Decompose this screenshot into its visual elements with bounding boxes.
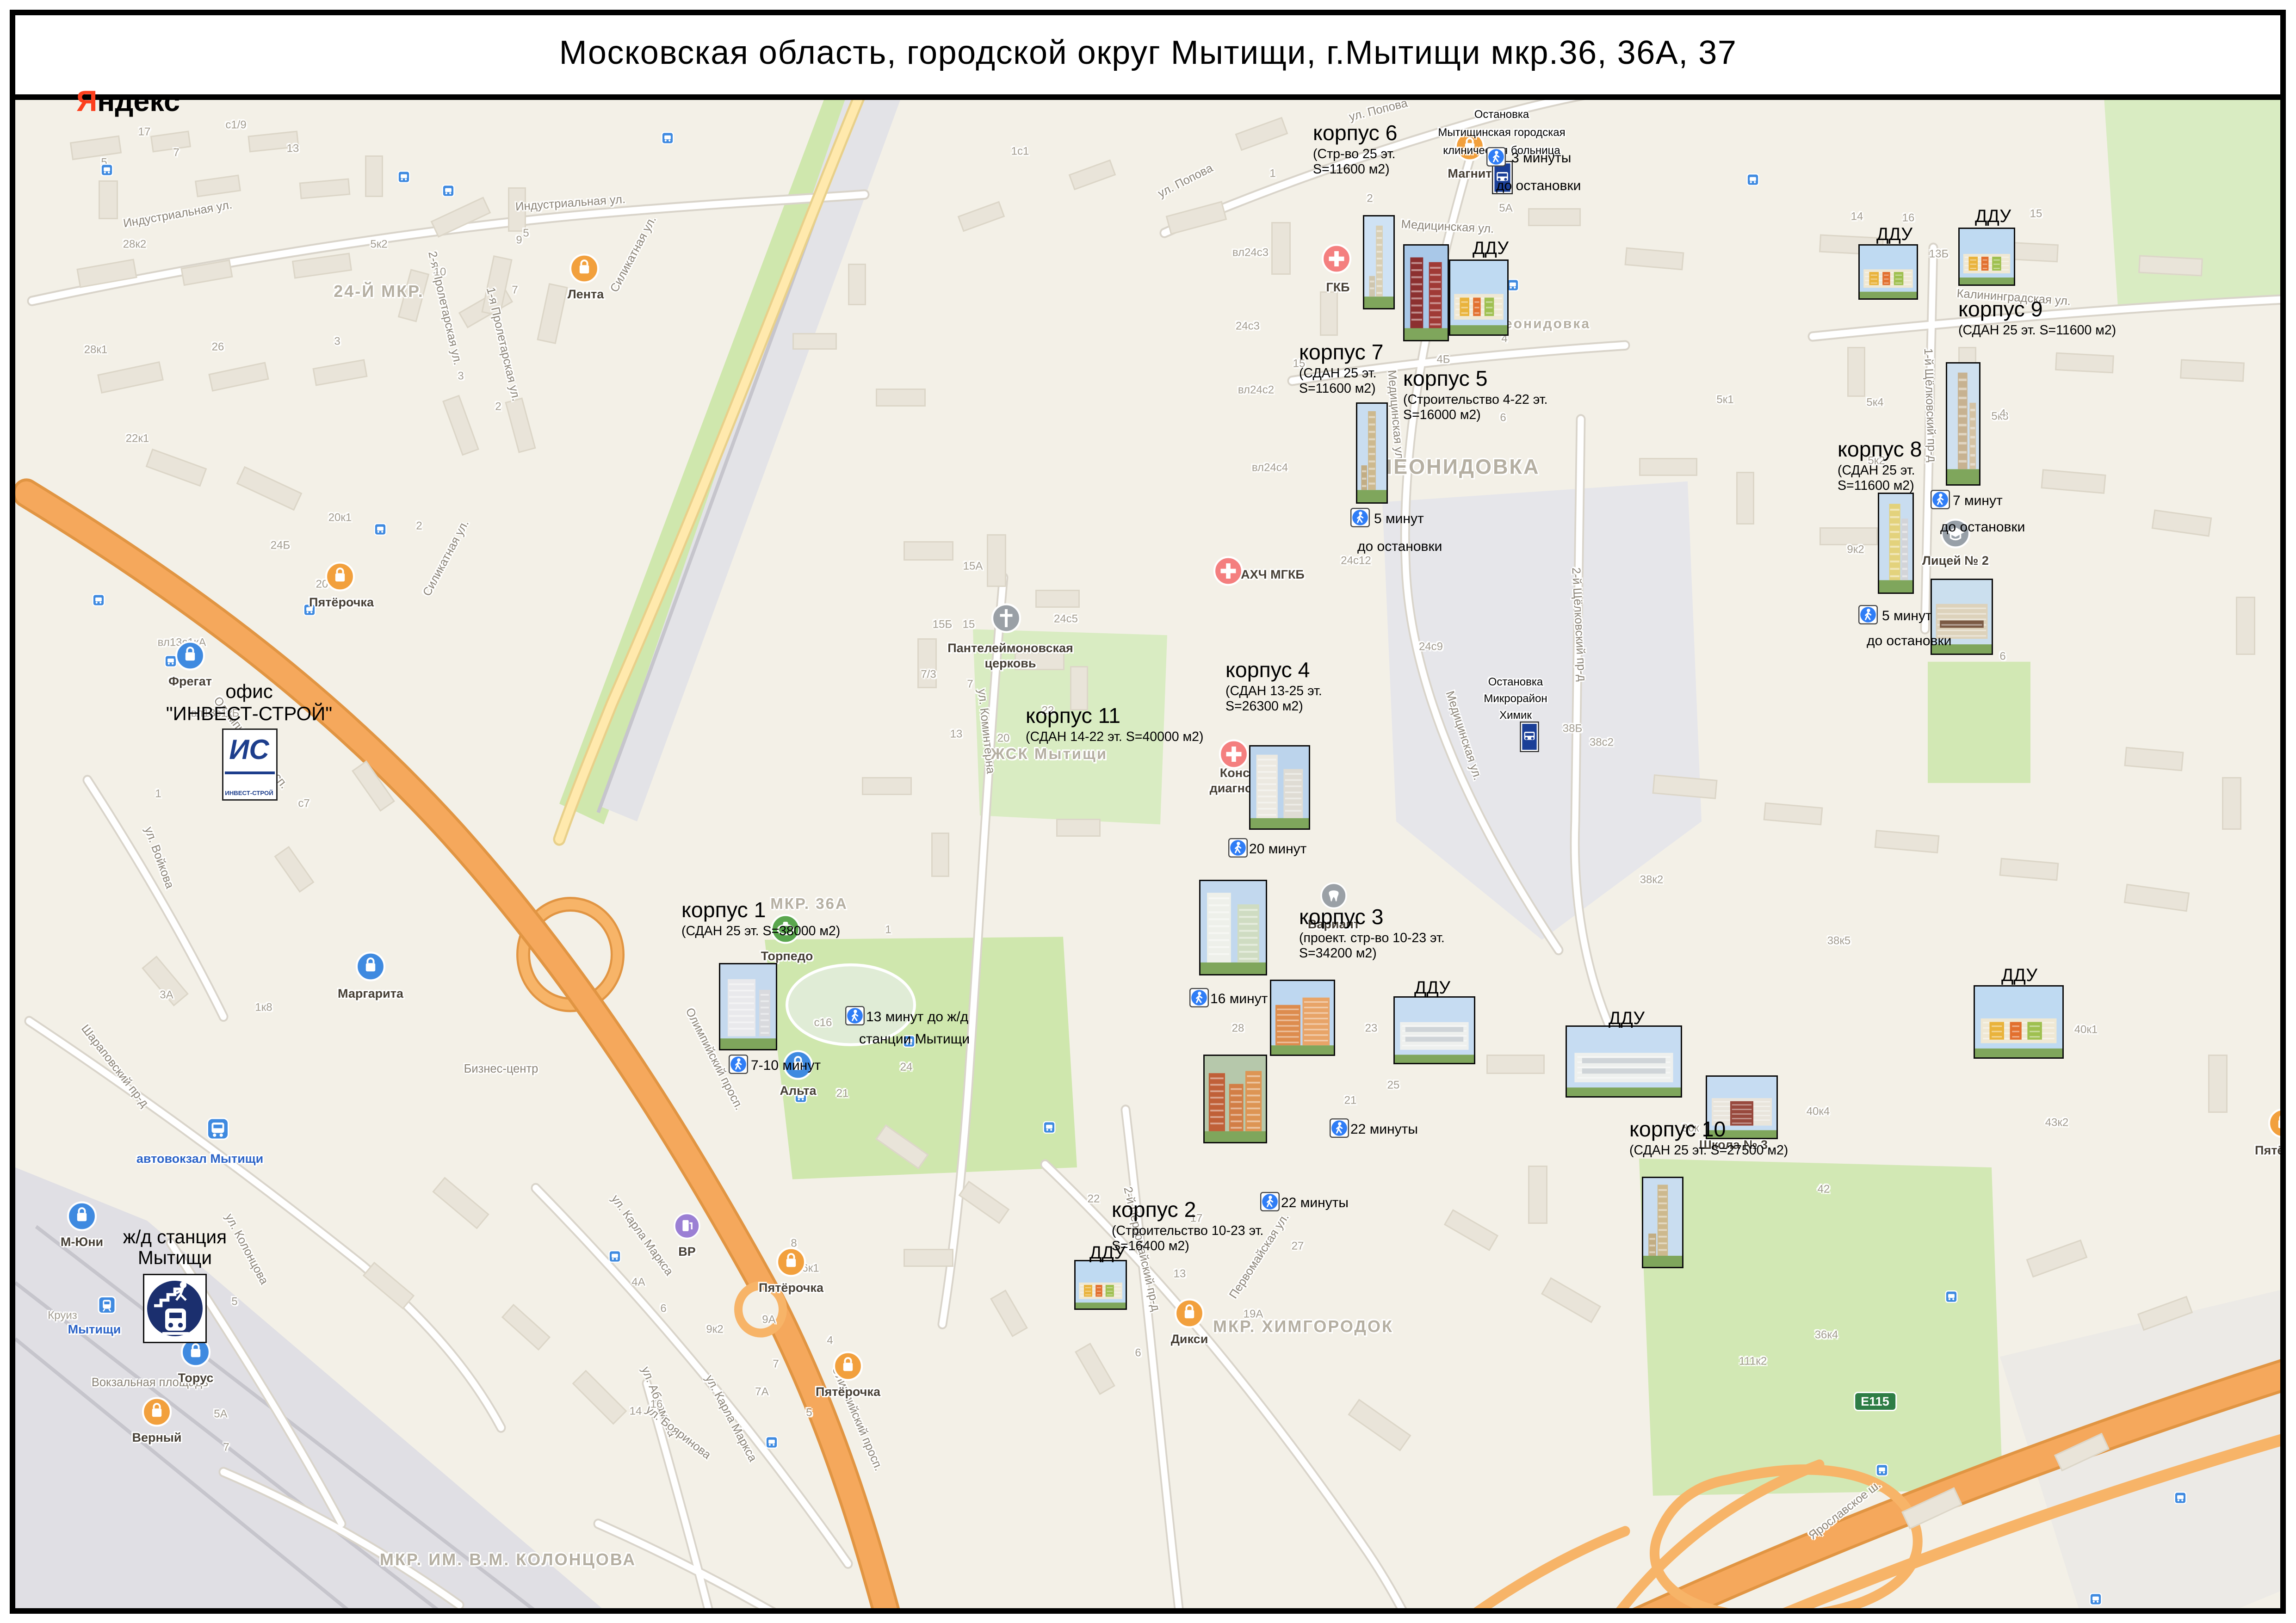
korpus-details: (Строительство 10-23 эт. — [1112, 1224, 1263, 1239]
building-number: 2 — [1367, 192, 1373, 205]
building-number: 43к2 — [2045, 1117, 2069, 1129]
building-number: 24с5 — [1054, 613, 1078, 625]
ddu-photo — [1393, 996, 1475, 1064]
ddu-photo — [1566, 1025, 1682, 1098]
building-number: вл24с4 — [1252, 462, 1288, 474]
building-number: 9к2 — [1847, 543, 1864, 556]
building-footprint — [2222, 777, 2241, 830]
korpus-details: (проект. стр-во 10-23 эт. — [1299, 931, 1445, 946]
walk-time-label: 16 минут — [1210, 992, 1268, 1007]
building-footprint — [1486, 1055, 1545, 1074]
building-number: 15 — [963, 618, 975, 631]
building-footprint — [1736, 472, 1754, 525]
shopping-bag-blue-icon[interactable] — [355, 951, 386, 989]
building-number: 38к2 — [1640, 874, 1664, 886]
invest-stroy-logo: ИС ИНВЕСТ-СТРОЙ — [222, 728, 277, 801]
bus-stop-mini-icon[interactable] — [662, 126, 674, 151]
building-number: 1с1 — [1011, 145, 1029, 158]
shopping-bag-orange-icon[interactable] — [569, 253, 600, 291]
korpus-details: (СДАН 14-22 эт. S=40000 м2) — [1026, 730, 1204, 745]
yandex-logo[interactable]: Яндекс — [76, 86, 180, 119]
shopping-bag-blue-icon[interactable] — [67, 1201, 97, 1239]
building-footprint — [2236, 597, 2255, 655]
building-number: 2 — [495, 401, 501, 413]
korpus-annotation: корпус 2(Строительство 10-23 эт.S=16400 … — [1112, 1199, 1263, 1254]
poi-label: Пятёрочка — [2255, 1143, 2281, 1157]
korpus-annotation: корпус 8(СДАН 25 эт.S=11600 м2) — [1838, 438, 1922, 494]
building-number: 38к5 — [1827, 935, 1851, 947]
bus-stop-mini-icon[interactable] — [398, 165, 410, 190]
ddu-label: ДДУ — [1473, 237, 1509, 258]
walk-time-label: 3 минуты — [1511, 151, 1571, 167]
medical-cross-icon[interactable] — [1213, 556, 1244, 593]
korpus-name: корпус 3 — [1299, 906, 1445, 931]
poi-label: Торус — [178, 1371, 214, 1385]
invest-stroy-caption: ИНВЕСТ-СТРОЙ — [223, 790, 276, 796]
building-number: 6 — [660, 1302, 666, 1315]
building-footprint — [1528, 1166, 1547, 1224]
shopping-bag-orange-icon[interactable] — [833, 1351, 863, 1388]
building-number: 4 — [1999, 407, 2005, 420]
building-number: 4А — [631, 1276, 645, 1289]
pedestrian-sign-icon — [1330, 1118, 1349, 1145]
building-number: 40к4 — [1807, 1105, 1830, 1118]
bus-stop-sign-icon[interactable] — [1520, 722, 1539, 759]
ddu-label: ДДУ — [2001, 964, 2037, 985]
building-number: 13 — [950, 728, 963, 741]
ddu-photo — [1858, 244, 1918, 300]
route-shield-e115: E115 — [1854, 1392, 1896, 1411]
bus-stop-mini-icon[interactable] — [2090, 1587, 2102, 1608]
building-number: 5 — [523, 227, 529, 240]
building-number: 9к2 — [706, 1323, 723, 1336]
korpus-name: корпус 11 — [1026, 705, 1204, 730]
bus-stop-mini-icon[interactable] — [766, 1431, 778, 1456]
district-label: ЛЕОНИДОВКА — [1378, 456, 1540, 480]
building-footprint — [1639, 458, 1697, 476]
poi-label: ВР — [678, 1245, 696, 1259]
building-footprint — [862, 777, 912, 795]
poi-label: Маргарита — [338, 987, 403, 1000]
building-footprint — [987, 534, 1006, 587]
poi-label: Альта — [780, 1084, 816, 1098]
poi-label: автовокзал Мытищи — [136, 1152, 263, 1166]
korpus-annotation: корпус 1(СДАН 25 эт. S=38000 м2) — [681, 899, 840, 939]
building-number: с1/9 — [225, 119, 246, 131]
korpus-photo — [1403, 244, 1449, 341]
korpus-details: S=16400 м2) — [1112, 1239, 1263, 1254]
bus-stop-name: Остановка — [1488, 676, 1543, 688]
korpus-details: (СДАН 13-25 эт. — [1225, 684, 1322, 699]
building-footprint — [904, 1249, 953, 1267]
walk-time-label: станции Мытищи — [859, 1032, 970, 1048]
building-footprint — [365, 155, 383, 197]
building-footprint — [1847, 347, 1865, 397]
walk-time-label: 20 минут — [1249, 842, 1306, 858]
building-number: с16 — [814, 1017, 832, 1029]
building-number: 5А — [214, 1408, 227, 1420]
korpus-photo — [1249, 745, 1310, 830]
korpus-details: S=26300 м2) — [1225, 699, 1322, 715]
building-number: 15А — [963, 560, 983, 573]
building-number: 38Б — [1563, 722, 1582, 735]
poi-label: Пятёрочка — [816, 1385, 880, 1399]
walk-time-label: 13 минут до ж/д — [866, 1010, 968, 1025]
building-number: 16 — [650, 1398, 663, 1411]
building-number: 25 — [1387, 1079, 1400, 1092]
map-document: Индустриальная ул.Индустриальная ул.2-я … — [0, 0, 2296, 1623]
office-line2: "ИНВЕСТ-СТРОЙ" — [149, 702, 350, 724]
building-footprint — [1320, 291, 1338, 336]
shopping-bag-orange-icon[interactable] — [776, 1247, 806, 1284]
building-number: 3А — [160, 989, 173, 1001]
shopping-bag-orange-icon[interactable] — [2268, 1108, 2281, 1146]
building-number: 42 — [1818, 1183, 1830, 1196]
district-label: 24-Й МКР. — [334, 282, 424, 301]
korpus-details: (СДАН 25 эт. — [1299, 366, 1384, 382]
building-number: 21 — [1344, 1094, 1357, 1107]
invest-stroy-initials: ИС — [223, 730, 276, 771]
bus-stop-mini-icon[interactable] — [1043, 1116, 1056, 1141]
shopping-bag-orange-icon[interactable] — [142, 1397, 172, 1434]
building-footprint — [1056, 819, 1101, 837]
bus-stop-mini-icon[interactable] — [1945, 1285, 1958, 1310]
fuel-pump-icon[interactable] — [673, 1212, 701, 1247]
building-number: 7/3 — [921, 668, 936, 681]
shopping-bag-orange-icon[interactable] — [1174, 1298, 1205, 1336]
building-number: 7 — [967, 678, 973, 691]
poi-label: Лента — [568, 287, 604, 301]
building-number: 5к2 — [370, 238, 387, 251]
building-number: 26 — [212, 341, 224, 353]
building-number: 13Б — [1929, 248, 1949, 260]
korpus-photo — [1270, 980, 1335, 1056]
building-number: 22к1 — [126, 432, 149, 445]
poi-label: Пятёрочка — [759, 1281, 823, 1295]
bus-stop-mini-icon[interactable] — [442, 179, 455, 204]
poi-label: Дикси — [1171, 1332, 1208, 1346]
korpus-annotation: корпус 7(СДАН 25 эт.S=11600 м2) — [1299, 341, 1384, 397]
building-number: 4 — [827, 1334, 833, 1347]
korpus-photo — [1363, 215, 1395, 309]
medical-cross-icon[interactable] — [1321, 244, 1352, 281]
ddu-label: ДДУ — [1975, 205, 2011, 226]
building-number: 5А — [1499, 202, 1512, 215]
korpus-photo — [1203, 1055, 1267, 1143]
walk-time-label: 22 минуты — [1281, 1196, 1349, 1211]
building-footprint — [2055, 352, 2114, 374]
office-line1: офис — [149, 680, 350, 702]
bus-stop-name: Микрорайон — [1484, 692, 1547, 705]
bus-stop-mini-icon[interactable] — [101, 158, 113, 183]
walk-time-label: 7 минут — [1953, 494, 2003, 509]
korpus-name: корпус 4 — [1225, 659, 1322, 684]
church-icon[interactable] — [991, 603, 1021, 641]
building-number: 9А — [762, 1314, 775, 1326]
building-number: 1 — [885, 924, 891, 936]
poi-label: Пятёрочка — [309, 595, 374, 609]
building-number: 16 — [1902, 212, 1915, 224]
ddu-photo — [1958, 228, 2015, 286]
map-canvas[interactable]: Индустриальная ул.Индустриальная ул.2-я … — [15, 100, 2281, 1608]
korpus-details: S=11600 м2) — [1313, 162, 1398, 178]
korpus-details: (СДАН 25 эт. S=11600 м2) — [1958, 323, 2116, 339]
map-base-layer — [15, 100, 2281, 1608]
building-number: 5к4 — [1866, 396, 1883, 409]
korpus-photo — [1878, 493, 1914, 594]
building-number: 28к2 — [123, 238, 147, 251]
korpus-annotation: корпус 11(СДАН 14-22 эт. S=40000 м2) — [1026, 705, 1204, 745]
poi-label: М-Юни — [61, 1235, 103, 1249]
building-number: 20к1 — [328, 512, 352, 524]
building-footprint — [2138, 255, 2203, 276]
walk-time-label: до остановки — [1496, 179, 1581, 194]
building-footprint — [917, 638, 937, 688]
building-footprint — [1070, 666, 1088, 710]
korpus-details: S=16000 м2) — [1403, 408, 1547, 423]
building-number: 20 — [997, 732, 1010, 745]
building-number: 24 — [900, 1061, 913, 1074]
rail-station-line1: ж/д станция — [99, 1227, 251, 1247]
yandex-logo-first-letter: Я — [76, 86, 97, 118]
building-number: 4Б — [1436, 353, 1450, 366]
building-number: 36к4 — [1815, 1329, 1838, 1341]
ddu-label: ДДУ — [1414, 977, 1450, 998]
rail-station-annotation: ж/д станция Мытищи — [99, 1227, 251, 1343]
building-number: 24с12 — [1341, 555, 1371, 567]
building-number: 6 — [1135, 1347, 1141, 1359]
building-number: 15Б — [933, 618, 952, 631]
building-footprint — [1819, 527, 1878, 545]
office-annotation: офис "ИНВЕСТ-СТРОЙ" ИС ИНВЕСТ-СТРОЙ — [149, 680, 350, 801]
building-number: 21 — [836, 1087, 849, 1100]
poi-label: ГКБ — [1326, 280, 1349, 294]
building-number: 7А — [755, 1386, 768, 1398]
walk-time-label: до остановки — [1357, 540, 1442, 555]
poi-label: Пантелеймоновская — [947, 641, 1073, 655]
korpus-details: (СДАН 25 эт. — [1838, 463, 1922, 479]
korpus-photo — [1642, 1177, 1683, 1268]
building-number: 17 — [138, 126, 151, 138]
ddu-photo — [1974, 985, 2064, 1059]
building-number: 3 — [458, 370, 464, 383]
korpus-annotation: корпус 4(СДАН 13-25 эт.S=26300 м2) — [1225, 659, 1322, 715]
shopping-bag-orange-icon[interactable] — [325, 562, 355, 599]
street-label: Бизнес-центр — [464, 1061, 538, 1075]
korpus-details: (Строительство 4-22 эт. — [1403, 393, 1547, 408]
korpus-name: корпус 5 — [1403, 368, 1547, 393]
rail-station-line2: Мытищи — [99, 1247, 251, 1268]
building-number: 7 — [773, 1358, 779, 1370]
district-label: ЖСК Мытищи — [991, 747, 1108, 763]
screenshot-root: Индустриальная ул.Индустриальная ул.2-я … — [0, 0, 2296, 1623]
building-number: 7 — [223, 1441, 229, 1454]
pedestrian-sign-icon — [845, 1006, 865, 1032]
bus-stop-name: Мытищинская городская — [1438, 126, 1565, 139]
building-footprint — [1528, 208, 1581, 226]
walk-time-label: 22 минуты — [1350, 1123, 1418, 1138]
walk-time-label: 5 минут — [1882, 609, 1932, 624]
korpus-details: (СДАН 25 эт. S=38000 м2) — [681, 924, 840, 939]
building-number: 14 — [630, 1405, 642, 1418]
building-number: 28к1 — [84, 344, 108, 356]
korpus-annotation: корпус 6(Стр-во 25 эт.S=11600 м2) — [1313, 122, 1398, 178]
poi-label: АХЧ МГКБ — [1241, 568, 1305, 581]
bus-stop-name: Остановка — [1474, 108, 1529, 121]
title-bar: Московская область, городской округ Мыти… — [15, 15, 2281, 94]
korpus-details: (СДАН 25 эт. S=27500 м2) — [1629, 1143, 1788, 1159]
building-footprint — [876, 389, 926, 407]
walk-time-label: 7-10 минут — [751, 1059, 821, 1074]
building-number: 10 — [434, 266, 446, 278]
building-footprint — [848, 264, 866, 305]
bus-stop-mini-icon[interactable] — [1876, 1458, 1888, 1483]
building-number: 9 — [516, 234, 522, 247]
walk-time-label: 5 минут — [1374, 512, 1424, 527]
building-number: 22 — [1088, 1193, 1100, 1205]
building-number: 23 — [1365, 1022, 1378, 1035]
ddu-label: ДДУ — [1609, 1007, 1645, 1028]
building-footprint — [931, 833, 949, 877]
building-number: 2 — [416, 520, 422, 532]
yandex-logo-rest: ндекс — [97, 86, 180, 118]
bus-stop-mini-icon[interactable] — [2174, 1486, 2187, 1511]
poi-label: Верный — [132, 1431, 181, 1444]
poi-label: Торпедо — [761, 949, 813, 963]
poi-label: Магнит — [1448, 167, 1491, 180]
building-footprint — [2180, 359, 2245, 382]
ddu-label: ДДУ — [1876, 223, 1912, 244]
korpus-annotation: корпус 5(Строительство 4-22 эт.S=16000 м… — [1403, 368, 1547, 423]
pedestrian-sign-icon — [1260, 1192, 1280, 1218]
building-footprint — [1271, 222, 1291, 275]
bus-stop-mini-icon[interactable] — [374, 518, 387, 543]
building-number: 5к1 — [1716, 394, 1733, 406]
building-number: 38с2 — [1590, 736, 1614, 749]
pedestrian-sign-icon — [1931, 490, 1950, 516]
building-footprint — [1035, 590, 1080, 608]
building-number: 24с3 — [1236, 320, 1260, 333]
building-number: 7 — [173, 147, 179, 159]
korpus-details: (Стр-во 25 эт. — [1313, 147, 1398, 162]
korpus-name: корпус 8 — [1838, 438, 1922, 463]
poi-label: Лицей № 2 — [1922, 554, 1989, 568]
building-number: 6 — [1999, 650, 2005, 663]
building-number: 14 — [1851, 210, 1863, 223]
pedestrian-sign-icon — [1228, 838, 1248, 864]
building-number: вл24с2 — [1238, 384, 1274, 396]
building-number: 13 — [1174, 1268, 1186, 1280]
building-number: 5 — [806, 1407, 812, 1419]
ddu-label: ДДУ — [1089, 1242, 1126, 1263]
building-footprint — [2208, 1055, 2228, 1113]
page-title: Московская область, городской округ Мыти… — [15, 35, 2281, 74]
building-number: вл24с3 — [1232, 247, 1269, 259]
building-number: 24Б — [271, 539, 290, 552]
korpus-photo — [1946, 362, 1980, 486]
building-number: 1 — [1269, 167, 1275, 180]
korpus-details: S=34200 м2) — [1299, 946, 1445, 962]
building-number: 3 — [334, 335, 340, 348]
pedestrian-sign-icon — [729, 1055, 748, 1081]
pedestrian-sign-icon — [1189, 988, 1209, 1014]
korpus-photo — [719, 963, 777, 1050]
district-label: МКР. ИМ. В.М. КОЛОНЦОВА — [380, 1550, 636, 1569]
korpus-name: корпус 2 — [1112, 1199, 1263, 1224]
pedestrian-sign-icon — [1486, 147, 1506, 173]
building-number: 15 — [2030, 208, 2042, 220]
building-number: 13 — [287, 142, 299, 155]
building-number: 28 — [1232, 1022, 1244, 1035]
korpus-photo — [1356, 402, 1388, 504]
korpus-annotation: корпус 10(СДАН 25 эт. S=27500 м2) — [1629, 1118, 1788, 1159]
walk-time-label: до остановки — [1867, 634, 1951, 649]
bus-stop-name: Химик — [1499, 709, 1532, 722]
korpus-photo — [1199, 880, 1267, 975]
title-divider — [15, 94, 2281, 100]
building-footprint — [99, 180, 118, 219]
building-number: 19А — [1244, 1308, 1263, 1321]
building-number: 7 — [512, 284, 518, 296]
korpus-name: корпус 6 — [1313, 122, 1398, 147]
building-footprint — [792, 333, 837, 350]
korpus-details: S=11600 м2) — [1299, 382, 1384, 397]
building-number: 40к1 — [2074, 1024, 2098, 1036]
korpus-annotation: корпус 3(проект. стр-во 10-23 эт.S=34200… — [1299, 906, 1445, 962]
building-number: Круиз — [48, 1309, 77, 1322]
bus-stop-mini-icon[interactable] — [1747, 168, 1759, 193]
bus-stop-mini-icon[interactable] — [609, 1245, 621, 1270]
building-number: 24с9 — [1419, 641, 1443, 653]
korpus-annotation: корпус 9(СДАН 25 эт. S=11600 м2) — [1958, 298, 2116, 339]
korpus-name: корпус 1 — [681, 899, 840, 924]
shopping-bag-blue-icon[interactable] — [175, 641, 205, 678]
ddu-photo — [1074, 1260, 1127, 1310]
district-label: МКР. ХИМГОРОДОК — [1213, 1317, 1393, 1336]
building-footprint — [904, 541, 953, 561]
building-number: 27 — [1292, 1240, 1304, 1253]
building-number: 1к8 — [255, 1001, 272, 1014]
korpus-name: корпус 10 — [1629, 1118, 1788, 1143]
pedestrian-sign-icon — [1350, 508, 1370, 534]
korpus-name: корпус 7 — [1299, 341, 1384, 366]
korpus-name: корпус 9 — [1958, 298, 2116, 323]
walk-time-label: до остановки — [1940, 520, 2025, 536]
pedestrian-sign-icon — [1858, 605, 1878, 631]
ddu-photo — [1449, 259, 1509, 336]
bus-terminal-icon[interactable] — [207, 1118, 229, 1147]
bus-stop-mini-icon[interactable] — [93, 588, 105, 613]
korpus-details: S=11600 м2) — [1838, 479, 1922, 494]
rail-station-icon — [143, 1274, 207, 1343]
poi-label: церковь — [985, 656, 1036, 670]
building-number: 111к2 — [1739, 1355, 1767, 1368]
